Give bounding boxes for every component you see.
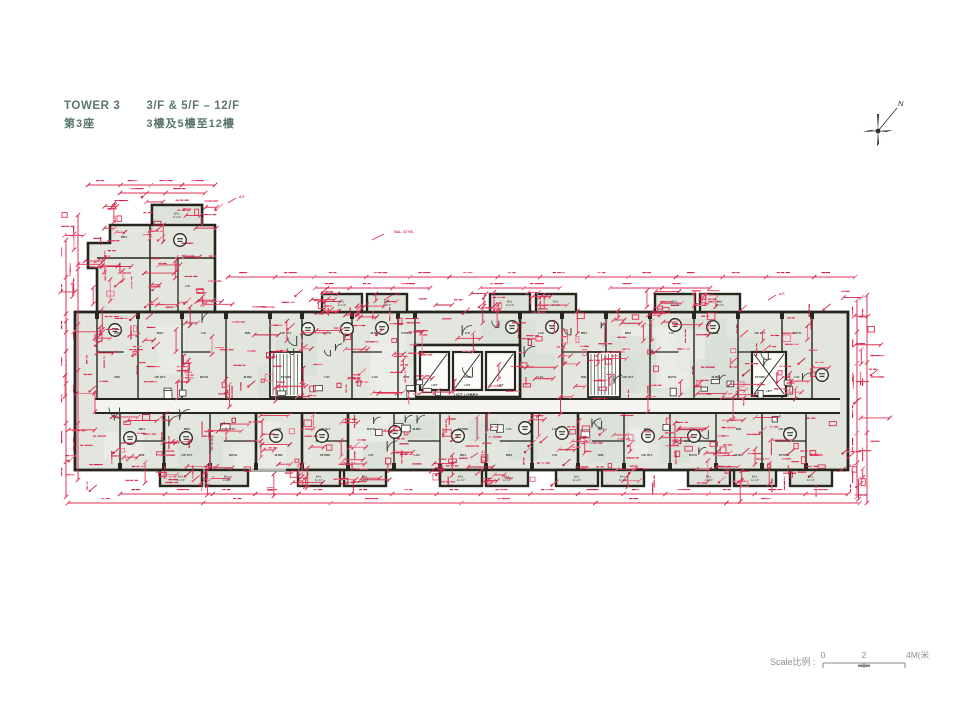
scale-bar-graphic: 0 2 4M(米) (820, 648, 930, 674)
floor-plan-drawing: LIFTLIFTLIFTLIFTLIFT LOBBYBR1DIN.BR2OP. … (0, 0, 960, 720)
unit-number-circle (816, 369, 829, 382)
svg-text:& U.P.: & U.P. (223, 478, 231, 482)
svg-text:LIFT: LIFT (766, 389, 772, 393)
svg-text:& U.P.: & U.P. (716, 303, 724, 307)
svg-text:BAL. AT H/L: BAL. AT H/L (394, 230, 413, 234)
svg-text:BR2: BR2 (644, 427, 650, 431)
svg-text:DIN.: DIN. (276, 427, 282, 431)
scale-label: Scale比例 : (770, 655, 816, 668)
unit-number-circle (174, 234, 187, 247)
svg-text:BR2: BR2 (506, 453, 512, 457)
svg-text:& U.P.: & U.P. (315, 478, 323, 482)
svg-text:BR2: BR2 (184, 427, 190, 431)
svg-text:OP. KIT.: OP. KIT. (280, 331, 291, 335)
svg-text:STORE: STORE (458, 427, 469, 431)
svg-text:& U.P.: & U.P. (361, 478, 369, 482)
svg-text:BR1: BR1 (114, 331, 120, 335)
svg-text:BR1: BR1 (121, 235, 127, 239)
compass-n-label: N (898, 99, 904, 108)
svg-text:BR2: BR2 (157, 331, 163, 335)
scale-tick-4: 4M(米) (906, 650, 930, 660)
svg-text:& U.P.: & U.P. (552, 303, 560, 307)
svg-text:BATH: BATH (229, 453, 238, 457)
svg-text:U.P.: U.P. (324, 375, 330, 379)
svg-text:BR1: BR1 (460, 453, 466, 457)
svg-text:BATH: BATH (689, 453, 698, 457)
svg-text:STORE: STORE (755, 375, 766, 379)
svg-text:LIV.: LIV. (185, 284, 191, 288)
svg-text:BR1: BR1 (598, 427, 604, 431)
compass-north-icon: N (844, 90, 916, 162)
unit-number-circle (452, 430, 465, 443)
svg-text:OP. KIT.: OP. KIT. (778, 427, 789, 431)
svg-text:& U.P.: & U.P. (457, 478, 465, 482)
svg-text:M.BR.: M.BR. (413, 427, 422, 431)
svg-text:OP. KIT.: OP. KIT. (641, 453, 652, 457)
scale-tick-0: 0 (820, 650, 825, 660)
svg-text:& U.P.: & U.P. (705, 478, 713, 482)
svg-text:OP. KIT.: OP. KIT. (181, 453, 192, 457)
svg-text:A.F.: A.F. (239, 195, 245, 199)
svg-text:U.P.: U.P. (506, 427, 512, 431)
svg-text:DIN.: DIN. (245, 331, 251, 335)
svg-text:& U.P.: & U.P. (506, 303, 514, 307)
svg-text:A.F.: A.F. (779, 292, 785, 296)
svg-text:STORE: STORE (281, 375, 292, 379)
svg-text:DIN.: DIN. (139, 453, 145, 457)
svg-text:BATH: BATH (367, 427, 376, 431)
svg-text:LIFT LOBBY: LIFT LOBBY (454, 393, 479, 398)
svg-text:& U.P.: & U.P. (751, 478, 759, 482)
svg-text:STORE: STORE (320, 453, 331, 457)
svg-text:BR1: BR1 (403, 375, 409, 379)
svg-text:LAV.: LAV. (372, 375, 379, 379)
svg-text:& U.P.: & U.P. (173, 215, 181, 219)
svg-text:M.BR.: M.BR. (275, 453, 284, 457)
svg-text:U.P.: U.P. (794, 375, 800, 379)
unit-number-circle (546, 321, 559, 334)
unit-number-circle (688, 430, 701, 443)
scale-mid-tick (858, 665, 870, 668)
svg-text:LIFT: LIFT (432, 383, 438, 387)
unit-number-circle (180, 432, 193, 445)
svg-text:U.P.: U.P. (465, 331, 471, 335)
svg-text:A.F.: A.F. (395, 292, 401, 296)
svg-text:BATH: BATH (200, 375, 209, 379)
svg-text:A.F.: A.F. (849, 464, 855, 468)
svg-text:U.P.: U.P. (368, 453, 374, 457)
svg-text:DIN.: DIN. (114, 375, 120, 379)
scale-tick-2: 2 (861, 650, 866, 660)
svg-text:A.F.: A.F. (481, 450, 487, 454)
svg-text:& U.P.: & U.P. (807, 478, 815, 482)
floor-plan-page: TOWER 3 第3座 3/F & 5/F – 12/F 3樓及5樓至12樓 L… (0, 0, 960, 720)
svg-text:& U.P.: & U.P. (573, 478, 581, 482)
unit-number-circle (124, 432, 137, 445)
svg-text:M.BR.: M.BR. (712, 375, 721, 379)
svg-text:& U.P.: & U.P. (338, 303, 346, 307)
svg-text:OP. KIT.: OP. KIT. (154, 375, 165, 379)
unit-number-circle (302, 323, 315, 336)
svg-text:OP. KIT.: OP. KIT. (622, 375, 633, 379)
svg-text:BR2: BR2 (625, 331, 631, 335)
svg-text:LIV.: LIV. (669, 331, 675, 335)
svg-text:BR2: BR2 (464, 375, 470, 379)
svg-text:& U.P.: & U.P. (177, 478, 185, 482)
svg-text:BATH: BATH (668, 375, 677, 379)
unit-number-circle (519, 422, 532, 435)
svg-text:LIV.: LIV. (201, 331, 207, 335)
svg-text:LAV.: LAV. (552, 427, 559, 431)
svg-text:LAV.: LAV. (538, 331, 545, 335)
svg-text:& U.P.: & U.P. (383, 303, 391, 307)
svg-text:DIN.: DIN. (598, 453, 604, 457)
svg-text:DIN.: DIN. (736, 427, 742, 431)
svg-text:M.BR.: M.BR. (244, 375, 253, 379)
svg-text:LIV.: LIV. (552, 453, 558, 457)
svg-text:& U.P.: & U.P. (619, 478, 627, 482)
svg-text:OP. KIT.: OP. KIT. (754, 331, 765, 335)
scale-bar: Scale比例 : 0 2 4M(米) (770, 648, 930, 674)
svg-text:& U.P.: & U.P. (503, 478, 511, 482)
svg-text:A.F.: A.F. (105, 255, 111, 259)
svg-text:DIN.: DIN. (581, 375, 587, 379)
unit-number-circle (270, 430, 283, 443)
svg-text:LIFT: LIFT (465, 383, 471, 387)
svg-text:BR1: BR1 (139, 427, 145, 431)
svg-text:BR1: BR1 (581, 331, 587, 335)
svg-text:DIN.: DIN. (713, 331, 719, 335)
svg-text:OP. KIT.: OP. KIT. (319, 427, 330, 431)
svg-text:LAV.: LAV. (414, 453, 421, 457)
svg-text:& U.P.: & U.P. (671, 303, 679, 307)
